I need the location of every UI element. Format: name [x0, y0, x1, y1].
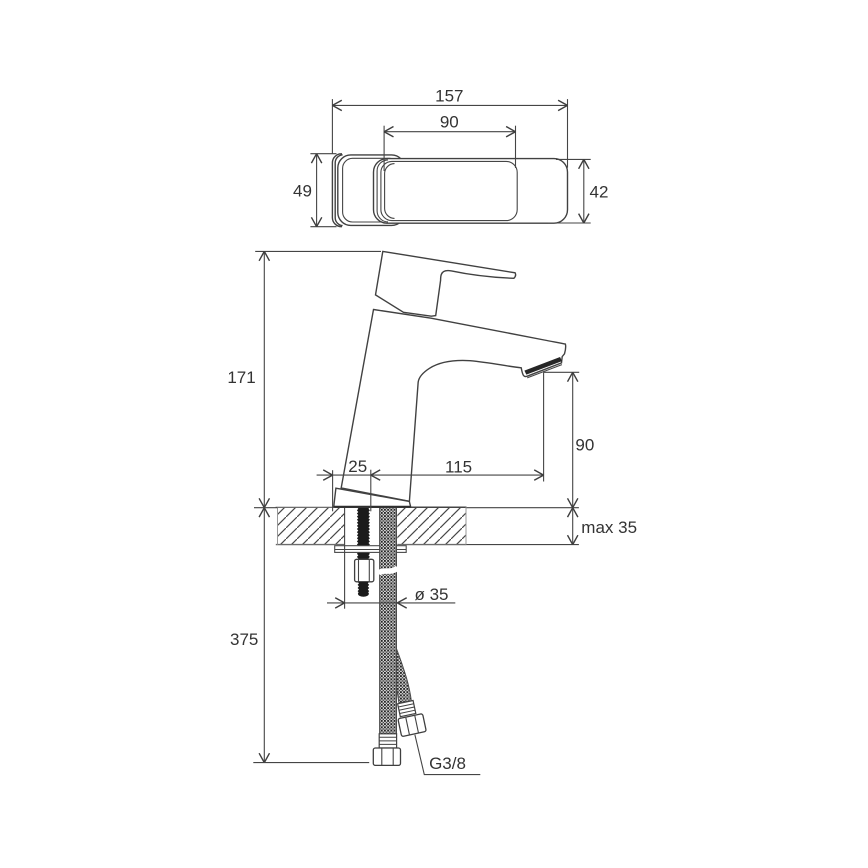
svg-text:42: 42	[590, 182, 609, 201]
svg-text:157: 157	[435, 87, 463, 106]
svg-text:115: 115	[445, 458, 472, 477]
svg-text:90: 90	[575, 435, 594, 454]
svg-text:171: 171	[227, 368, 255, 387]
svg-text:ø 35: ø 35	[415, 585, 449, 604]
svg-text:375: 375	[230, 630, 258, 649]
svg-text:90: 90	[440, 113, 459, 132]
svg-text:25: 25	[348, 457, 367, 476]
svg-text:49: 49	[293, 182, 312, 201]
svg-text:G3/8: G3/8	[429, 754, 466, 773]
svg-text:max 35: max 35	[581, 518, 637, 537]
